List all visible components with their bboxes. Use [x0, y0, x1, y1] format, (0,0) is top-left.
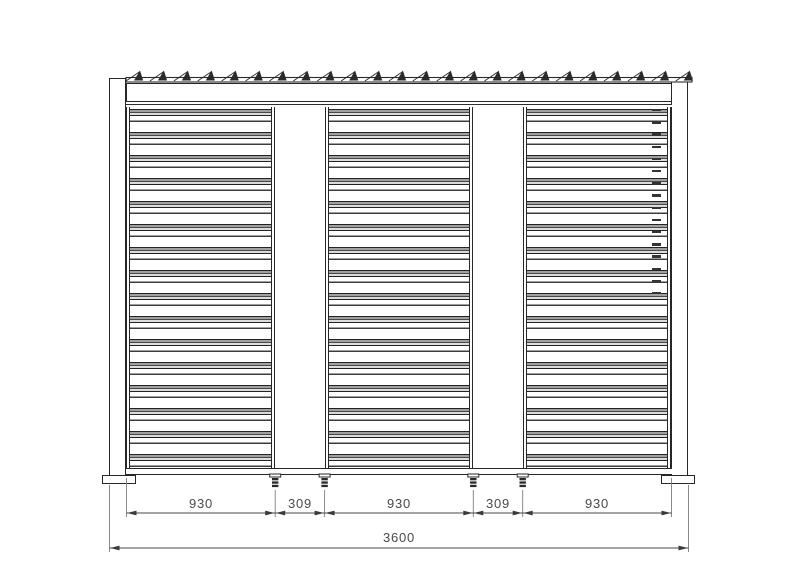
louver-clip-mark	[652, 231, 661, 233]
leveling-foot	[517, 474, 528, 487]
louver-clip-mark	[652, 255, 661, 257]
header-beam	[126, 83, 672, 102]
right-post	[671, 78, 688, 476]
louver-clip-mark	[652, 268, 661, 270]
louver-clip-mark	[652, 121, 661, 123]
louver-slats	[329, 107, 469, 468]
dimension-label-2: 309	[288, 496, 312, 511]
panel-stile	[667, 107, 671, 468]
louver-clip-mark	[652, 146, 661, 148]
pergola-elevation-drawing: 930 309 930 309 930 3600	[0, 0, 800, 565]
leveling-foot	[468, 474, 479, 487]
louver-clip-mark	[652, 182, 661, 184]
dimension-label-5: 930	[585, 496, 609, 511]
panel-gap-1	[275, 107, 325, 468]
roof-louver-strip	[126, 71, 693, 83]
bottom-rail	[126, 468, 672, 475]
louver-panel-1	[126, 107, 275, 468]
louver-clip-mark	[652, 292, 661, 294]
total-dimension-label: 3600	[383, 530, 415, 545]
louver-panel-3	[523, 107, 671, 468]
leveling-feet	[270, 474, 529, 487]
louver-clip-mark	[652, 158, 661, 160]
right-base-plate	[661, 475, 695, 484]
louver-clip-mark	[652, 219, 661, 221]
louver-panel-2	[325, 107, 473, 468]
left-post	[109, 78, 126, 476]
dimension-label-4: 309	[486, 496, 510, 511]
panel-gap-2	[473, 107, 523, 468]
louver-clip-mark	[652, 133, 661, 135]
dimension-label-1: 930	[189, 496, 213, 511]
louver-slats	[527, 107, 667, 468]
dimension-label-3: 930	[387, 496, 411, 511]
louver-slats	[130, 107, 271, 468]
louver-clip-mark	[652, 194, 661, 196]
louver-clip-mark	[652, 280, 661, 282]
leveling-foot	[319, 474, 330, 487]
louver-clip-mark	[652, 243, 661, 245]
louver-clip-mark	[652, 170, 661, 172]
left-base-plate	[102, 475, 136, 484]
louver-clip-mark	[652, 207, 661, 209]
louver-clip-mark	[652, 109, 661, 111]
leveling-foot	[270, 474, 281, 487]
